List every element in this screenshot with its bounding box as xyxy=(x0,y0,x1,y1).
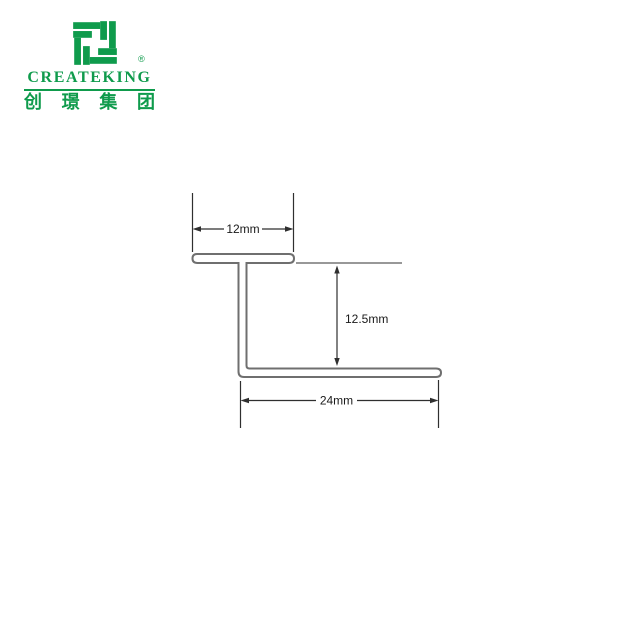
profile-outline xyxy=(193,254,442,377)
arrow-left-icon xyxy=(193,226,202,231)
arrow-down-icon xyxy=(334,358,339,366)
arrow-right-icon xyxy=(285,226,294,231)
dimension-label-top-width: 12mm xyxy=(226,222,259,236)
dimension-label-bottom-width: 24mm xyxy=(320,394,353,408)
profile-cross-section-diagram: 12mm 12.5mm 24mm xyxy=(0,0,640,640)
arrow-right-icon xyxy=(430,398,439,403)
page: { "brand": { "name": "CREATEKING", "regi… xyxy=(0,0,640,640)
arrow-left-icon xyxy=(241,398,250,403)
dimension-label-height: 12.5mm xyxy=(345,312,388,326)
arrow-up-icon xyxy=(334,266,339,274)
